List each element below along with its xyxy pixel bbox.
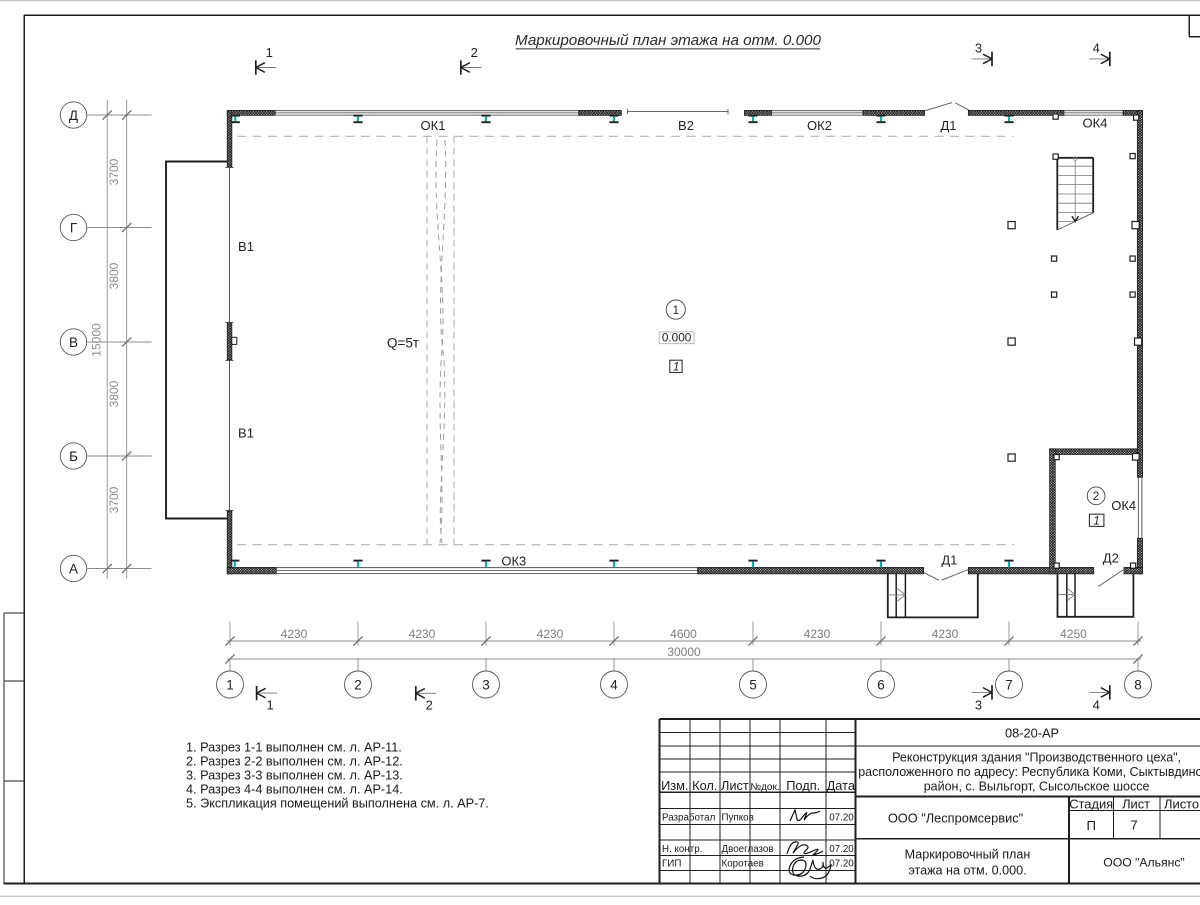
- svg-text:5. Экспликация помещений выпол: 5. Экспликация помещений выполнена см. л…: [186, 797, 489, 811]
- svg-text:7: 7: [1130, 818, 1137, 833]
- svg-text:7: 7: [1005, 677, 1013, 692]
- svg-text:ГИП: ГИП: [662, 859, 681, 870]
- svg-text:3. Разрез 3-3 выполнен см. л.: 3. Разрез 3-3 выполнен см. л. АР-13.: [186, 769, 403, 783]
- svg-text:этажа на отм. 0.000.: этажа на отм. 0.000.: [908, 864, 1026, 878]
- svg-text:30000: 30000: [667, 645, 701, 659]
- svg-text:1: 1: [266, 45, 273, 60]
- svg-text:2: 2: [426, 698, 433, 713]
- svg-text:4230: 4230: [932, 627, 959, 641]
- svg-text:3: 3: [975, 698, 982, 713]
- svg-text:4: 4: [1093, 698, 1100, 713]
- svg-text:4: 4: [1093, 40, 1100, 55]
- svg-text:3: 3: [482, 677, 490, 692]
- svg-text:Лист: Лист: [721, 778, 749, 793]
- svg-text:Подп.: Подп.: [786, 778, 820, 793]
- svg-text:район, с. Выльгорт, Сысольское: район, с. Выльгорт, Сысольское шоссе: [924, 779, 1150, 793]
- svg-text:ООО "Леспромсервис": ООО "Леспромсервис": [888, 811, 1023, 826]
- svg-text:Листов: Листов: [1164, 797, 1200, 812]
- svg-text:4: 4: [610, 677, 618, 692]
- svg-text:расположенного по адресу: Респ: расположенного по адресу: Республика Ком…: [858, 765, 1200, 779]
- svg-text:1: 1: [226, 677, 234, 692]
- svg-text:ОК2: ОК2: [807, 118, 832, 133]
- svg-text:07.20: 07.20: [829, 813, 854, 824]
- svg-text:Лист: Лист: [1122, 797, 1150, 812]
- svg-text:ООО "Альянс": ООО "Альянс": [1103, 856, 1185, 870]
- svg-text:Д1: Д1: [940, 118, 956, 133]
- svg-text:4230: 4230: [537, 627, 564, 641]
- svg-text:ОК3: ОК3: [501, 554, 526, 569]
- svg-text:15000: 15000: [89, 323, 103, 357]
- svg-text:4230: 4230: [804, 627, 831, 641]
- svg-text:Стадия: Стадия: [1069, 797, 1113, 812]
- svg-text:4. Разрез 4-4 выполнен см. л.: 4. Разрез 4-4 выполнен см. л. АР-14.: [186, 783, 403, 797]
- svg-text:2: 2: [471, 45, 478, 60]
- svg-text:Маркировочный план этажа на от: Маркировочный план этажа на отм. 0.000: [515, 32, 821, 49]
- svg-text:ОК4: ОК4: [1083, 116, 1108, 131]
- svg-text:А: А: [69, 561, 78, 576]
- svg-text:5: 5: [749, 677, 757, 692]
- svg-text:4230: 4230: [409, 627, 436, 641]
- svg-text:Д2: Д2: [1103, 551, 1119, 566]
- svg-text:1. Разрез 1-1 выполнен см. л.: 1. Разрез 1-1 выполнен см. л. АР-11.: [186, 741, 402, 755]
- svg-text:4230: 4230: [281, 627, 308, 641]
- svg-text:Двоеглазов: Двоеглазов: [722, 844, 774, 855]
- svg-text:2: 2: [354, 677, 362, 692]
- svg-text:3: 3: [975, 40, 982, 55]
- svg-text:0.000: 0.000: [662, 330, 692, 344]
- svg-text:Реконструкция здания "Производ: Реконструкция здания "Производственного …: [892, 751, 1181, 765]
- svg-text:2. Разрез 2-2 выполнен см. л.: 2. Разрез 2-2 выполнен см. л. АР-12.: [186, 755, 403, 769]
- svg-text:ОК4: ОК4: [1111, 498, 1136, 513]
- svg-text:Разработал: Разработал: [662, 813, 716, 824]
- svg-text:Коротаев: Коротаев: [722, 859, 764, 870]
- svg-text:Д: Д: [69, 108, 78, 123]
- svg-text:6: 6: [877, 677, 885, 692]
- svg-text:4600: 4600: [670, 627, 697, 641]
- svg-text:Кол.: Кол.: [692, 778, 717, 793]
- svg-text:Изм.: Изм.: [661, 778, 688, 793]
- svg-text:Д1: Д1: [941, 553, 957, 568]
- svg-text:Н. контр.: Н. контр.: [662, 844, 702, 855]
- svg-text:В1: В1: [238, 239, 254, 254]
- svg-text:3800: 3800: [107, 262, 121, 289]
- svg-text:В2: В2: [678, 118, 694, 133]
- svg-text:08-20-АР: 08-20-АР: [1005, 726, 1059, 741]
- svg-text:Пупков: Пупков: [722, 813, 754, 824]
- svg-text:1: 1: [1093, 515, 1099, 527]
- svg-text:№док.: №док.: [750, 782, 779, 793]
- svg-text:Г: Г: [70, 220, 78, 235]
- svg-text:Б: Б: [69, 449, 78, 464]
- svg-text:Дата: Дата: [827, 778, 856, 793]
- svg-text:1: 1: [673, 361, 679, 373]
- svg-text:07.20: 07.20: [829, 844, 854, 855]
- svg-text:ОК1: ОК1: [421, 118, 446, 133]
- svg-text:В: В: [69, 335, 78, 350]
- svg-text:3800: 3800: [107, 380, 121, 407]
- svg-text:2: 2: [1093, 491, 1099, 503]
- svg-text:07.20: 07.20: [829, 859, 854, 870]
- svg-text:1: 1: [673, 305, 679, 317]
- svg-text:8: 8: [1134, 677, 1142, 692]
- svg-text:4250: 4250: [1060, 627, 1087, 641]
- svg-text:П: П: [1086, 818, 1095, 833]
- svg-text:В1: В1: [238, 426, 254, 441]
- svg-text:3700: 3700: [107, 486, 121, 513]
- svg-text:Q=5т: Q=5т: [387, 336, 419, 351]
- svg-text:Маркировочный план: Маркировочный план: [905, 848, 1031, 862]
- svg-text:1: 1: [266, 698, 273, 713]
- svg-text:3700: 3700: [107, 158, 121, 185]
